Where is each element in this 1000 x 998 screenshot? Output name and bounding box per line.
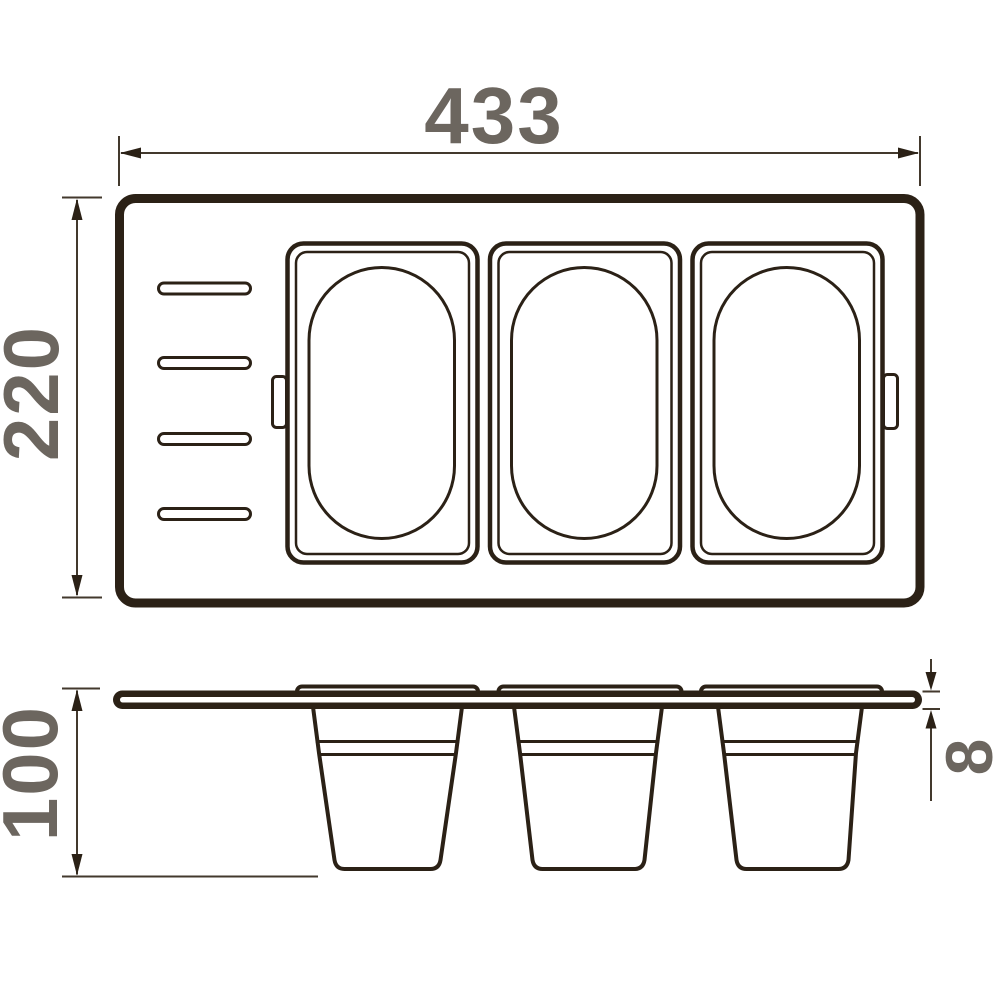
dim-width-arrow-left <box>120 148 141 159</box>
dim-thickness-arrow-down <box>926 672 937 691</box>
container-1-outer <box>288 244 478 563</box>
dim-height-arrow-bottom <box>72 575 83 597</box>
dim-width-arrow-right <box>898 148 919 159</box>
right-tab <box>884 375 898 429</box>
dim-side-graphics <box>62 689 318 877</box>
panel-stripe <box>120 697 915 703</box>
side-view <box>113 687 922 870</box>
container-3-outer <box>693 244 883 563</box>
dim-height-arrow-top <box>72 199 83 221</box>
bucket-2 <box>514 703 663 869</box>
dim-side-ticks <box>62 689 318 877</box>
drawing-canvas: 433 220 100 8 <box>0 0 1000 998</box>
dim-side-arrow-bottom <box>72 854 83 876</box>
dim-width-label: 433 <box>394 74 594 158</box>
panel <box>113 691 922 710</box>
left-tab <box>273 377 287 428</box>
dim-panel-thickness-label: 8 <box>934 707 1000 807</box>
bucket-1 <box>313 703 463 869</box>
buckets <box>313 703 863 869</box>
dim-height-label: 220 <box>0 293 71 493</box>
container-2 <box>490 244 680 563</box>
container-1 <box>288 244 478 563</box>
container-3 <box>693 244 883 563</box>
dim-side-height-label: 100 <box>0 673 70 873</box>
bucket-3 <box>718 703 863 869</box>
container-2-outer <box>490 244 680 563</box>
top-view <box>120 199 921 604</box>
